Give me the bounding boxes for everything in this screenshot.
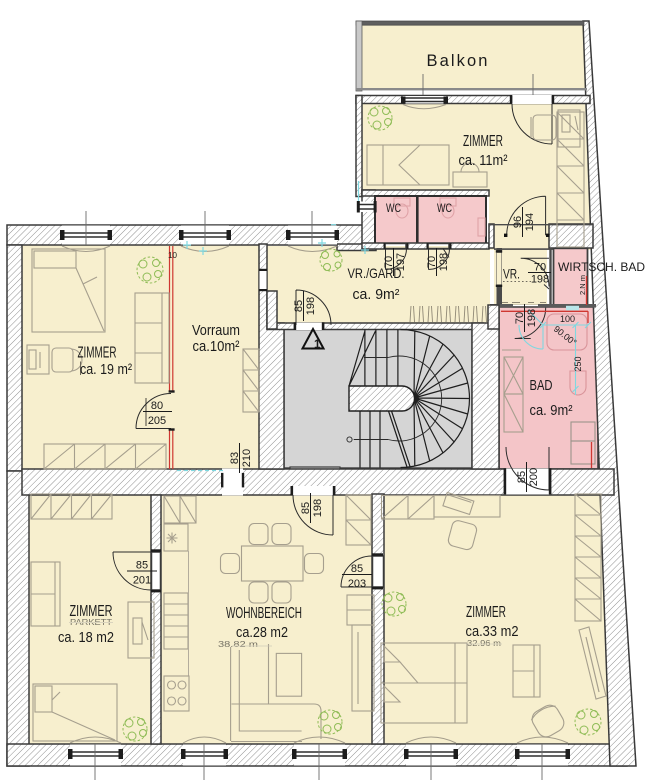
svg-text:ca.10m²: ca.10m² (193, 338, 240, 355)
svg-text:198: 198 (438, 253, 450, 271)
svg-text:198: 198 (531, 274, 549, 286)
svg-text:Balkon: Balkon (426, 52, 489, 70)
svg-text:250: 250 (573, 356, 583, 371)
svg-text:198: 198 (305, 297, 317, 315)
svg-text:VR.: VR. (503, 267, 520, 282)
svg-text:1: 1 (314, 339, 321, 351)
svg-text:10: 10 (168, 251, 177, 260)
svg-text:85: 85 (351, 563, 363, 575)
svg-text:ca. 11m²: ca. 11m² (459, 152, 508, 169)
svg-text:205: 205 (148, 415, 166, 427)
svg-text:PARKETT: PARKETT (70, 617, 112, 627)
svg-text:BAD: BAD (530, 377, 553, 394)
svg-text:Vorraum: Vorraum (192, 322, 240, 339)
svg-text:32.96 m: 32.96 m (467, 638, 501, 648)
svg-text:198: 198 (526, 309, 538, 327)
svg-text:ca. 18 m2: ca. 18 m2 (58, 629, 114, 646)
svg-text:WOHNBEREICH: WOHNBEREICH (226, 605, 302, 622)
svg-text:38.82 m: 38.82 m (218, 639, 258, 649)
svg-text:100: 100 (560, 314, 575, 324)
svg-text:ca. 9m²: ca. 9m² (530, 403, 573, 419)
svg-text:ca. 9m²: ca. 9m² (353, 287, 400, 303)
svg-text:210: 210 (241, 449, 253, 467)
svg-text:ZIMMER: ZIMMER (463, 133, 503, 150)
svg-text:2.N m: 2.N m (578, 275, 587, 295)
svg-text:197: 197 (395, 253, 407, 271)
svg-text:85: 85 (136, 560, 148, 572)
svg-text:WIRTSCH. BAD: WIRTSCH. BAD (558, 260, 645, 274)
svg-text:200: 200 (528, 468, 540, 486)
svg-text:203: 203 (348, 578, 366, 590)
svg-text:198: 198 (312, 499, 324, 517)
svg-text:WC: WC (386, 201, 401, 215)
svg-text:WC: WC (437, 201, 452, 215)
svg-text:194: 194 (524, 213, 536, 231)
svg-text:70: 70 (534, 262, 546, 274)
svg-text:80: 80 (151, 400, 163, 412)
svg-text:ZIMMER: ZIMMER (78, 345, 117, 362)
svg-text:201: 201 (133, 575, 151, 587)
svg-text:ca. 19 m²: ca. 19 m² (80, 361, 132, 378)
svg-text:ZIMMER: ZIMMER (466, 604, 506, 621)
